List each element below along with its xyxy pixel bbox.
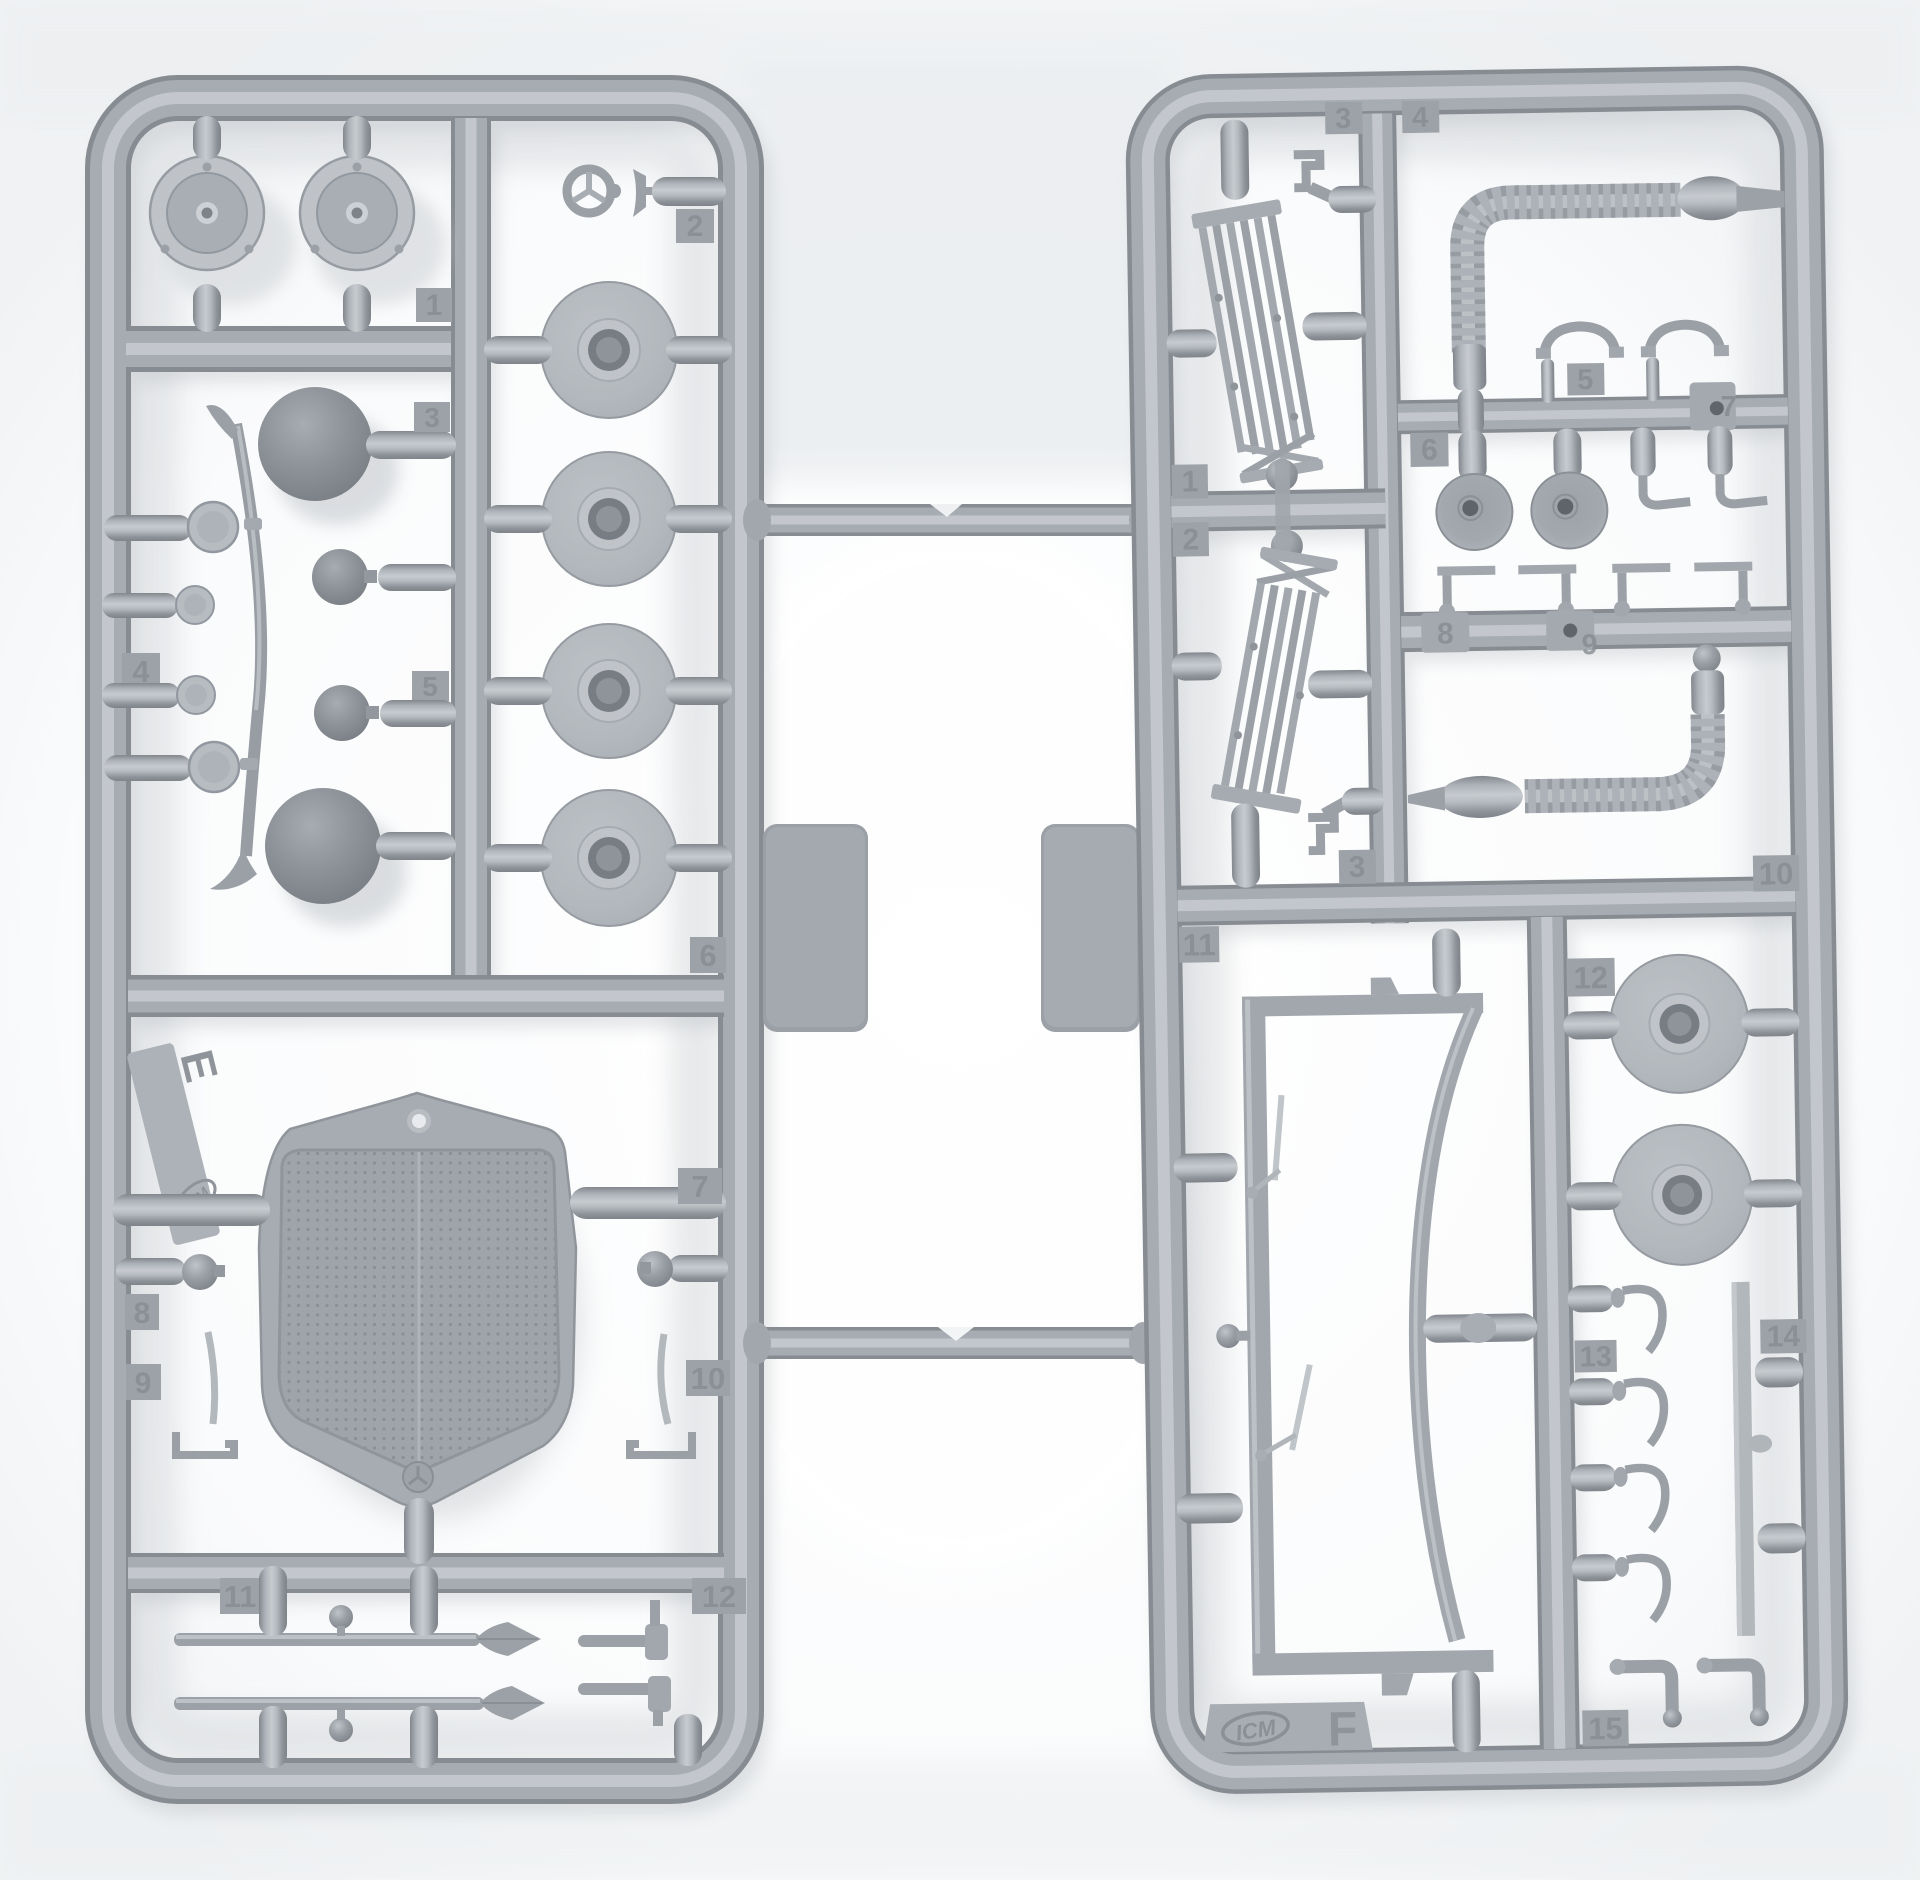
svg-text:7: 7 [1720, 391, 1737, 423]
svg-text:F: F [1327, 1703, 1357, 1756]
svg-text:11: 11 [1182, 927, 1215, 963]
svg-text:2: 2 [1182, 523, 1199, 556]
svg-text:1: 1 [426, 289, 443, 322]
svg-text:12: 12 [702, 1579, 736, 1614]
svg-text:4: 4 [1412, 102, 1429, 134]
svg-text:6: 6 [1421, 434, 1438, 467]
svg-text:14: 14 [1766, 1320, 1800, 1354]
svg-text:10: 10 [1759, 856, 1794, 892]
svg-text:1: 1 [1181, 465, 1198, 498]
svg-text:5: 5 [422, 671, 438, 702]
svg-text:15: 15 [1588, 1711, 1623, 1747]
svg-text:3: 3 [1348, 851, 1365, 884]
svg-text:10: 10 [691, 1361, 725, 1396]
svg-text:5: 5 [1577, 364, 1594, 396]
svg-text:11: 11 [224, 1579, 257, 1614]
svg-text:12: 12 [1573, 960, 1608, 996]
svg-text:13: 13 [1579, 1341, 1612, 1374]
svg-text:7: 7 [691, 1169, 708, 1204]
svg-text:8: 8 [134, 1297, 151, 1330]
svg-text:9: 9 [1581, 629, 1598, 661]
svg-text:2: 2 [687, 210, 704, 243]
svg-text:6: 6 [699, 938, 716, 973]
svg-text:8: 8 [1437, 617, 1454, 650]
svg-text:3: 3 [424, 402, 440, 433]
svg-text:3: 3 [1335, 103, 1352, 135]
svg-text:9: 9 [135, 1367, 152, 1400]
